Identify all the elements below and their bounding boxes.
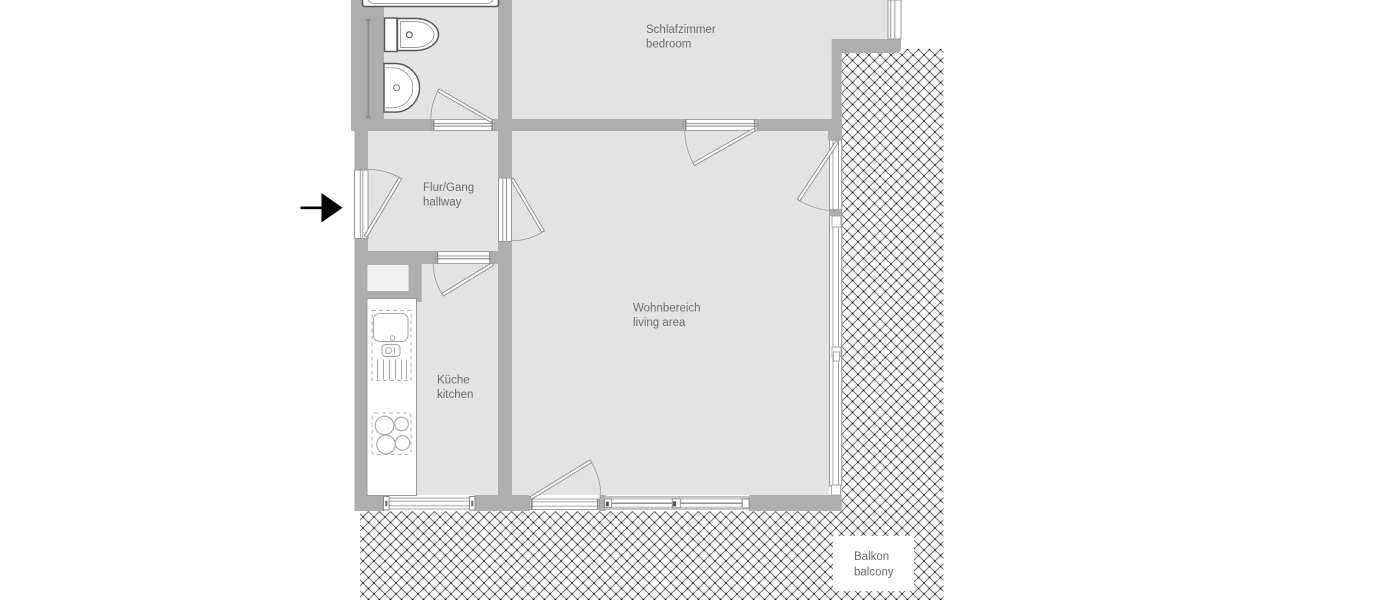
- svg-text:Balkon: Balkon: [854, 551, 889, 563]
- svg-text:Küche: Küche: [437, 375, 470, 387]
- svg-text:balcony: balcony: [854, 567, 894, 579]
- svg-text:living area: living area: [633, 317, 686, 329]
- svg-text:Flur/Gang: Flur/Gang: [423, 182, 474, 194]
- svg-text:bedroom: bedroom: [646, 39, 691, 51]
- svg-text:hallway: hallway: [423, 197, 462, 209]
- svg-text:Schlafzimmer: Schlafzimmer: [646, 24, 716, 36]
- svg-text:Wohnbereich: Wohnbereich: [633, 303, 701, 315]
- svg-text:kitchen: kitchen: [437, 389, 473, 401]
